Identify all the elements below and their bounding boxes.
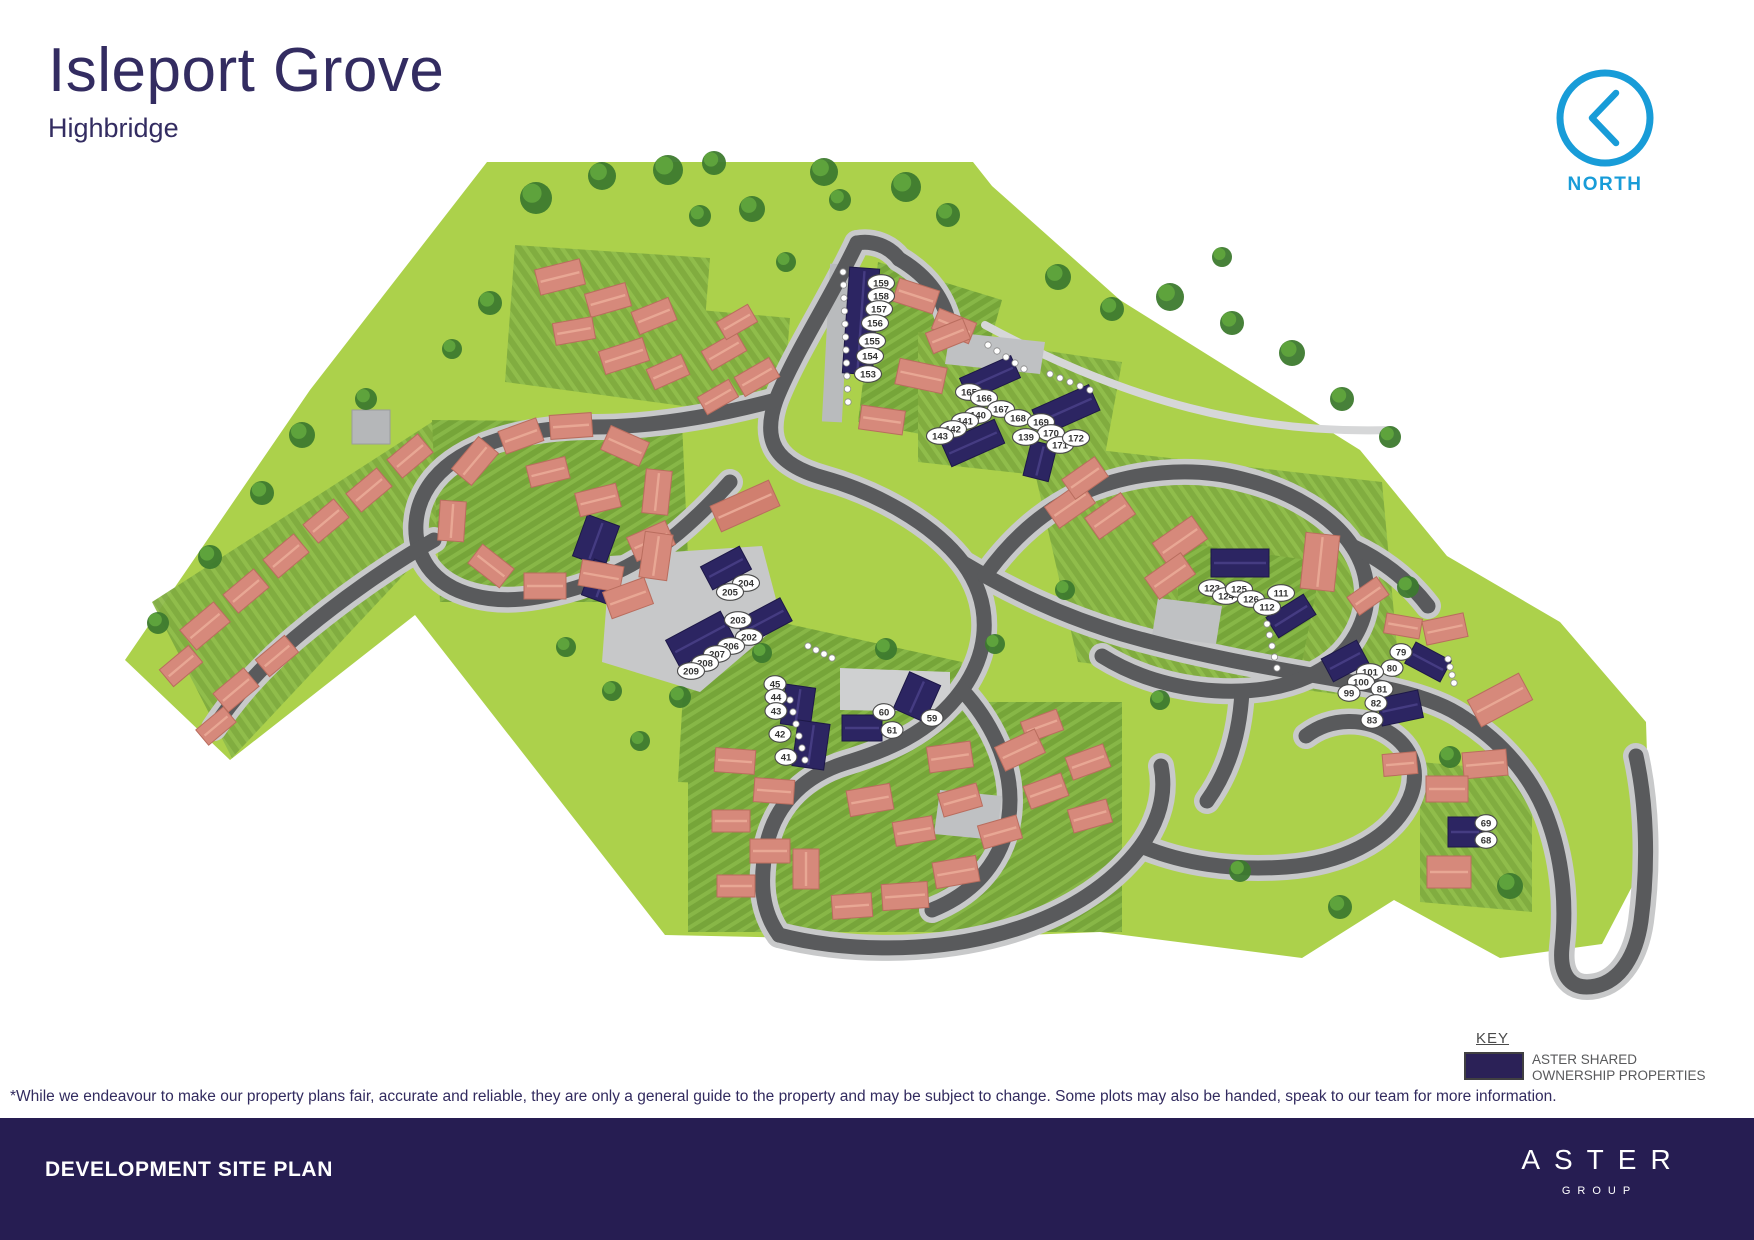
plot-label: 209 [678,663,705,680]
tree-icon [1328,895,1352,919]
house-building [1300,532,1340,591]
tree-icon [1150,690,1170,710]
house-building [1426,776,1468,802]
tree-icon [355,388,377,410]
parking-bay-marker [1012,360,1018,366]
key-label-line1: ASTER SHARED [1532,1052,1706,1068]
plot-label: 43 [765,703,787,720]
svg-text:61: 61 [887,725,898,736]
tree-icon [147,612,169,634]
parking-bay-marker [845,399,851,405]
shared-ownership-building [792,720,830,770]
page-subtitle: Highbridge [48,113,444,144]
tree-icon [875,638,897,660]
parking-bay-marker [1087,387,1093,393]
plot-label: 205 [717,584,744,601]
tree-icon [478,291,502,315]
site-plan-page: Isleport Grove Highbridge NORTH [0,0,1754,1240]
parking-bay-marker [1067,379,1073,385]
house-building [1427,856,1471,888]
parking-bay-marker [840,282,846,288]
plot-label: 83 [1361,712,1383,729]
parking-bay-marker [1447,664,1453,670]
parking-bay-marker [1451,680,1457,686]
plot-label: 99 [1338,685,1360,702]
parking-bay-marker [1266,632,1272,638]
tree-icon [602,681,622,701]
house-building [831,893,873,920]
logo-text-aster: ASTER [1486,1144,1720,1176]
house-building [712,810,750,832]
plot-label: 203 [725,612,752,629]
disclaimer-text: *While we endeavour to make our property… [10,1088,1754,1106]
tree-icon [1220,311,1244,335]
svg-text:82: 82 [1371,698,1382,709]
plot-label: 155 [859,333,886,350]
plot-label: 143 [927,428,954,445]
svg-text:80: 80 [1387,663,1398,674]
parking-bay-marker [843,347,849,353]
footer-bar: DEVELOPMENT SITE PLAN ASTER GROUP [0,1118,1754,1240]
parking-bay-marker [799,745,805,751]
parking-bay-marker [1077,383,1083,389]
north-label: NORTH [1543,174,1667,196]
parking-bay-marker [1274,665,1280,671]
plot-label: 61 [881,722,903,739]
parking-bay-marker [1269,643,1275,649]
svg-text:202: 202 [741,632,757,643]
tree-icon [776,252,796,272]
plot-label: 60 [873,704,895,721]
shared-ownership-building [842,715,882,741]
parking-bay-marker [844,386,850,392]
parking-bay-marker [796,733,802,739]
svg-text:166: 166 [976,393,992,404]
house-building [1382,752,1418,777]
svg-text:42: 42 [775,729,786,740]
parking-bay-marker [1271,654,1277,660]
parking-bay-marker [805,643,811,649]
tree-icon [936,203,960,227]
svg-text:41: 41 [781,752,792,763]
tree-icon [810,158,838,186]
parking-bay-marker [1003,354,1009,360]
tree-icon [891,172,921,202]
header: Isleport Grove Highbridge [48,38,444,144]
parking-bay-marker [829,655,835,661]
parking-bay-marker [802,757,808,763]
parking-bay-marker [1264,621,1270,627]
plot-label: 79 [1390,644,1412,661]
tree-icon [1156,283,1184,311]
house-building [793,849,819,889]
tree-icon [630,731,650,751]
svg-text:157: 157 [871,304,887,315]
svg-text:69: 69 [1481,818,1492,829]
svg-text:203: 203 [730,615,746,626]
tree-icon [653,155,683,185]
north-indicator: NORTH [1543,66,1667,196]
aster-group-logo: ASTER GROUP [1486,1144,1706,1197]
svg-text:60: 60 [879,707,890,718]
svg-text:143: 143 [932,431,948,442]
tree-icon [1100,297,1124,321]
tree-icon [1055,580,1075,600]
plot-label: 69 [1475,815,1497,832]
parking-bay-marker [1047,371,1053,377]
tree-icon [689,205,711,227]
shared-ownership-building [1211,549,1269,577]
tree-icon [1379,426,1401,448]
parking-bay-marker [1021,366,1027,372]
svg-text:209: 209 [683,666,699,677]
plot-label: 42 [769,726,791,743]
tree-icon [669,686,691,708]
tree-icon [1497,873,1523,899]
plot-label: 68 [1475,832,1497,849]
logo-text-group: GROUP [1486,1185,1713,1197]
parking-bay-marker [1449,672,1455,678]
house-building [639,531,673,580]
svg-text:112: 112 [1259,602,1274,613]
parking-bay-marker [842,334,848,340]
parking-bay-marker [841,295,847,301]
svg-text:205: 205 [722,587,739,598]
parking-bay-marker [813,647,819,653]
map-key: KEY ASTER SHARED OWNERSHIP PROPERTIES [1464,1030,1754,1084]
svg-text:83: 83 [1367,715,1378,726]
plot-label: 172 [1063,430,1090,447]
svg-text:154: 154 [862,351,879,362]
plot-label: 154 [857,348,884,365]
house-building [714,748,756,775]
house-building [1462,749,1508,779]
tree-icon [752,643,772,663]
plot-label: 59 [921,710,943,727]
svg-text:81: 81 [1377,684,1388,695]
svg-text:155: 155 [864,336,881,347]
tree-icon [1212,247,1232,267]
parking-bay-marker [842,321,848,327]
house-building [438,500,467,542]
house-building [881,881,929,910]
key-swatch-shared-ownership [1464,1052,1524,1080]
parking-bay-marker [1445,656,1451,662]
footer-title: DEVELOPMENT SITE PLAN [45,1158,333,1182]
tree-icon [520,182,552,214]
parking-bay-marker [787,697,793,703]
parking-bay-marker [840,269,846,275]
parking-bay-marker [985,342,991,348]
svg-text:43: 43 [771,706,782,717]
tree-icon [1330,387,1354,411]
svg-text:68: 68 [1481,835,1492,846]
house-building [926,741,973,773]
plot-label: 80 [1381,660,1403,677]
svg-text:139: 139 [1018,432,1034,443]
parking-bay-marker [994,348,1000,354]
house-building [717,875,755,897]
tree-icon [250,481,274,505]
tree-icon [1279,340,1305,366]
parking-bay-marker [821,651,827,657]
north-arrow-icon [1553,66,1657,170]
parking-bay-marker [793,721,799,727]
parking-bay-marker [1057,375,1063,381]
plot-label: 41 [775,749,797,766]
parking-bay-marker [843,360,849,366]
tree-icon [1045,264,1071,290]
svg-text:99: 99 [1344,688,1355,699]
tree-icon [1229,860,1251,882]
svg-text:111: 111 [1274,588,1290,599]
plot-label: 82 [1365,695,1387,712]
tree-icon [1397,576,1419,598]
house-building [753,778,795,805]
parking-bay-marker [790,709,796,715]
tree-icon [985,634,1005,654]
plot-label: 112 [1254,599,1281,616]
plot-label: 153 [855,366,882,383]
svg-text:79: 79 [1396,647,1407,658]
tree-icon [1439,746,1461,768]
house-building [549,413,593,440]
svg-text:44: 44 [771,692,782,703]
tree-icon [702,151,726,175]
house-building [524,573,566,599]
plot-label: 156 [862,315,889,332]
svg-text:153: 153 [860,369,876,380]
svg-text:172: 172 [1068,433,1084,444]
tree-icon [442,339,462,359]
svg-text:168: 168 [1010,413,1026,424]
key-heading: KEY [1476,1030,1754,1047]
parking-bay-marker [841,308,847,314]
tree-icon [556,637,576,657]
key-label-line2: OWNERSHIP PROPERTIES [1532,1068,1706,1084]
tree-icon [739,196,765,222]
tree-icon [829,189,851,211]
plot-label: 139 [1013,429,1040,446]
svg-text:156: 156 [867,318,883,329]
parking-bay-marker [844,373,850,379]
house-building [642,469,672,515]
tree-icon [289,422,315,448]
page-title: Isleport Grove [48,38,444,103]
tree-icon [588,162,616,190]
tree-icon [198,545,222,569]
svg-text:59: 59 [927,713,938,724]
house-building [750,839,790,863]
